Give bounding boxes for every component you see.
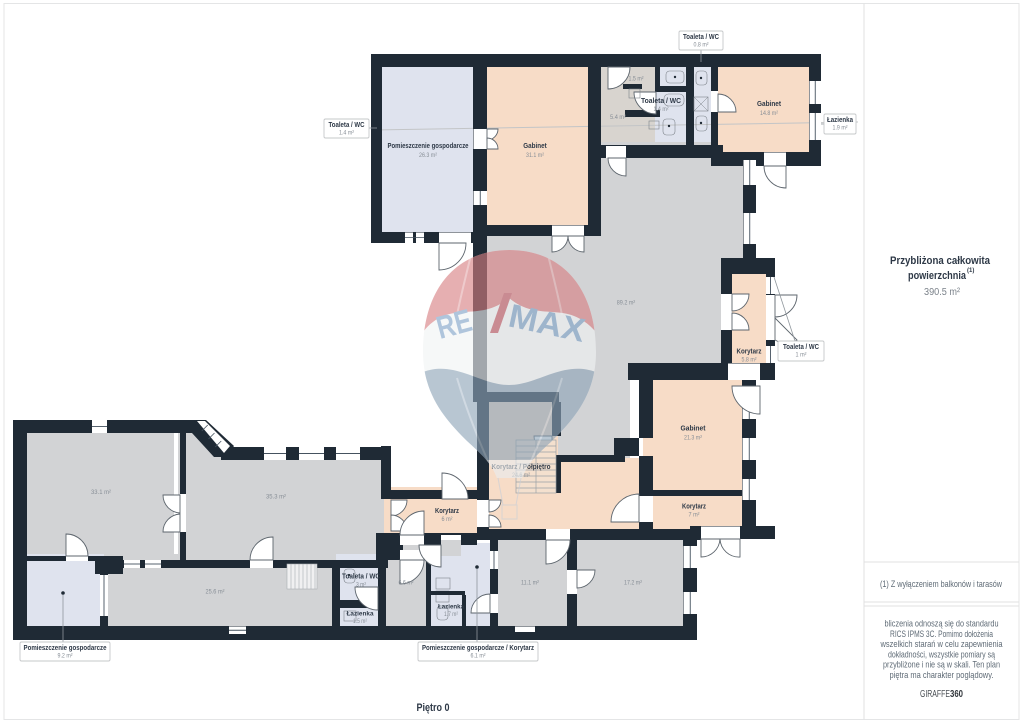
svg-text:1.9 m²: 1.9 m²	[833, 125, 848, 132]
svg-text:GIRAFFE: GIRAFFE	[920, 688, 950, 700]
svg-text:1.4 m²: 1.4 m²	[339, 130, 354, 137]
svg-text:1.5 m²: 1.5 m²	[629, 77, 644, 83]
svg-text:390.5 m²: 390.5 m²	[924, 287, 961, 298]
svg-text:Pomieszczenie gospodarcze / Ko: Pomieszczenie gospodarcze / Korytarz	[422, 645, 534, 652]
svg-text:Pomieszczenie gospodarcze: Pomieszczenie gospodarcze	[24, 645, 107, 652]
svg-text:25.6 m²: 25.6 m²	[206, 589, 225, 596]
svg-text:1.5 m²: 1.5 m²	[353, 619, 367, 625]
svg-text:Toaleta / WC: Toaleta / WC	[783, 344, 819, 351]
svg-text:6.6 m²: 6.6 m²	[399, 580, 414, 587]
svg-text:Korytarz: Korytarz	[737, 347, 762, 356]
svg-text:9.2 m²: 9.2 m²	[58, 653, 73, 660]
svg-text:Pomieszczenie gospodarcze: Pomieszczenie gospodarcze	[388, 141, 469, 150]
svg-text:31.1 m²: 31.1 m²	[526, 152, 544, 159]
svg-text:33.1 m²: 33.1 m²	[91, 489, 111, 496]
svg-text:6 m²: 6 m²	[442, 516, 453, 523]
svg-text:14.8 m²: 14.8 m²	[760, 110, 778, 117]
svg-text:Przybliżona całkowita: Przybliżona całkowita	[890, 255, 991, 267]
svg-text:piętra ma charakter poglądowy.: piętra ma charakter poglądowy.	[890, 670, 994, 680]
svg-text:35.3 m²: 35.3 m²	[266, 494, 286, 501]
svg-text:89.2 m²: 89.2 m²	[617, 300, 636, 307]
svg-text:5.4 m²: 5.4 m²	[610, 114, 626, 121]
svg-text:(1): (1)	[967, 268, 974, 274]
svg-text:Łazienka: Łazienka	[438, 604, 464, 611]
svg-text:Gabinet: Gabinet	[681, 424, 706, 433]
svg-text:bliczenia odnoszą się do stand: bliczenia odnoszą się do standardu	[885, 619, 999, 629]
svg-text:26.3 m²: 26.3 m²	[419, 152, 437, 159]
svg-text:powierzchnia: powierzchnia	[908, 270, 967, 282]
svg-text:11.1 m²: 11.1 m²	[521, 580, 539, 587]
svg-text:360: 360	[950, 688, 963, 700]
svg-text:5.8 m²: 5.8 m²	[742, 357, 757, 364]
svg-text:7 m²: 7 m²	[689, 512, 700, 519]
svg-text:Korytarz: Korytarz	[435, 506, 459, 515]
svg-text:Łazienka: Łazienka	[347, 611, 374, 618]
svg-text:Toaleta / WC: Toaleta / WC	[641, 96, 681, 105]
svg-text:RICS IPMS 3C. Pomimo dołożenia: RICS IPMS 3C. Pomimo dołożenia	[890, 629, 994, 639]
svg-text:Łazienka: Łazienka	[827, 117, 853, 124]
svg-text:wszelkich starań w celu zapewn: wszelkich starań w celu zapewnienia	[880, 639, 1003, 649]
svg-text:Toaleta / WC: Toaleta / WC	[342, 574, 380, 581]
svg-text:(1) Z wyłączeniem balkonów i t: (1) Z wyłączeniem balkonów i tarasów	[880, 579, 1002, 590]
svg-text:Piętro 0: Piętro 0	[417, 702, 450, 714]
svg-text:3 m²: 3 m²	[356, 582, 366, 589]
svg-text:Korytarz: Korytarz	[682, 502, 706, 511]
svg-text:przybliżone i nie są w skali.: przybliżone i nie są w skali. Ten plan	[883, 660, 1000, 670]
svg-text:dokładności, wszystkie pomiary: dokładności, wszystkie pomiary są	[888, 649, 996, 659]
svg-text:6.1 m²: 6.1 m²	[471, 653, 486, 660]
svg-text:Gabinet: Gabinet	[757, 99, 781, 108]
svg-text:Gabinet: Gabinet	[523, 141, 547, 150]
svg-text:1.7 m²: 1.7 m²	[444, 612, 458, 618]
svg-text:1 m²: 1 m²	[796, 352, 807, 359]
svg-text:1.4 m²: 1.4 m²	[654, 106, 669, 113]
svg-text:0.8 m²: 0.8 m²	[694, 42, 709, 49]
svg-text:17.2 m²: 17.2 m²	[624, 580, 642, 587]
svg-text:Toaleta / WC: Toaleta / WC	[329, 122, 365, 129]
svg-text:21.3 m²: 21.3 m²	[684, 435, 702, 442]
svg-text:Toaleta / WC: Toaleta / WC	[683, 34, 719, 41]
